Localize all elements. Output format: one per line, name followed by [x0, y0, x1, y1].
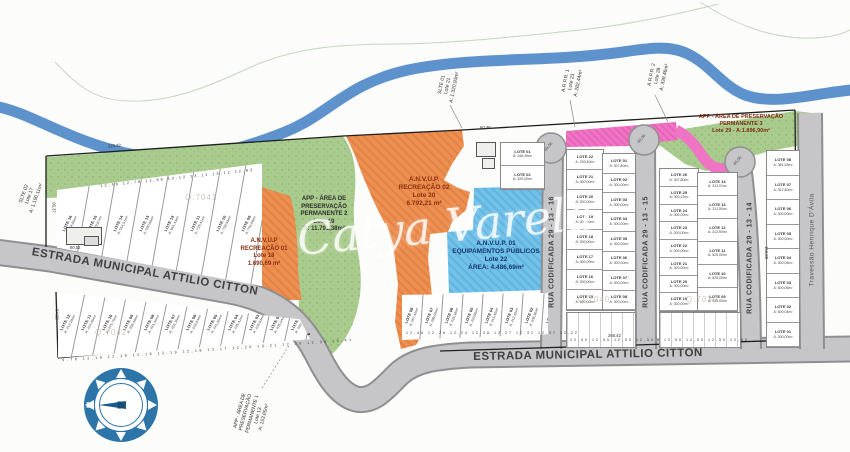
- quad-mark-7042: Q.7042: [95, 328, 127, 337]
- compass-north-letter: N: [85, 402, 95, 409]
- lot-cell: LOTE 21A: 300,00m²: [660, 258, 698, 276]
- label-rua-15: RUA CODIFICADA 29 - 13 - 15: [643, 196, 650, 308]
- lot-column-east-of-rua15: LOTE 26A: 307,80m²LOTE 25A: 300,12m²LOTE…: [659, 168, 699, 312]
- lot-cell: LOTE 02A: 600,04m²: [767, 298, 799, 323]
- lot-cell: LOTE 11A: 525,00m²: [698, 242, 737, 265]
- building-footprint-2: [476, 142, 496, 157]
- label-recreacao-01: A.N.V.U.P RECREAÇÃO 01 Lote 18 1.690,69 …: [226, 238, 302, 268]
- lot-column-west-of-rua14: LOTE 14A: 312,01m²LOTE 13A: 312,50m²LOTE…: [697, 172, 738, 312]
- lot-cell: LOTE 20A: 300,00m²: [660, 276, 698, 294]
- dim-left2: 54,32: [55, 309, 60, 319]
- quad-mark-7040: Q.7040: [578, 295, 610, 304]
- lot-cell: LOTE 01A: 307,80m²: [603, 154, 635, 174]
- dim-top2: 60,40: [480, 125, 490, 130]
- lot-strip-bottom-2: [659, 312, 741, 348]
- dim-top: 224,32: [108, 143, 121, 149]
- lot-cell: LOTE 01A: 246,49m²: [501, 143, 544, 166]
- dim-building: 80,52: [70, 245, 80, 250]
- lot-cell: LOTE 06A: 300,00m²: [603, 252, 635, 272]
- quad-mark-7039: Q.7039: [686, 295, 718, 304]
- lot-strip-bottom-1: [566, 312, 636, 348]
- building-footprint-2b: [482, 158, 495, 169]
- lot-column-west-of-rua16: LOTE 01A: 246,49m²LOTE 02A: 325,00m²: [500, 142, 545, 190]
- lot-cell: LOTE 08A: 381,93m²: [767, 151, 799, 176]
- lot-cell: LOTE 07A: 300,00m²: [603, 271, 635, 291]
- lot-cell: LOTE 26A: 307,80m²: [660, 169, 698, 187]
- dim-row-strip-1: 12,50 12,50 12,50 12,50: [570, 338, 655, 342]
- lot-cell: LOTE 01A: 300,00m²: [767, 323, 799, 348]
- dim-row-block-c: 12,48 12,26 12,24 12,38 12,27 12,32 12,3…: [406, 331, 579, 335]
- label-travessao: Travessão Henrique D'Ávila: [809, 193, 816, 286]
- lot-cell: LOTE 10A: 525,00m²: [698, 265, 737, 288]
- lot-cell: LOTE 04A: 300,00m²: [603, 213, 635, 233]
- label-rua-14: RUA CODIFICADA 29 - 13 - 14: [747, 202, 754, 314]
- lot-cell: LOTE 02A: 300,00m²: [603, 174, 635, 194]
- lot-cell: LOTE 05A: 300,00m²: [603, 232, 635, 252]
- dim-left: 95,37: [52, 202, 57, 212]
- lot-cell: LOTE 03A: 600,06m²: [767, 274, 799, 299]
- lot-cell: LOTE 23A: 300,00m²: [660, 222, 698, 240]
- lot-cell: LOTE 06A: 300,00m²: [767, 200, 799, 225]
- lot-cell: LOTE 04A: 300,05m²: [767, 249, 799, 274]
- building-footprint-1b: [84, 236, 99, 246]
- lot-cell: LOTE 12A: 312,50m²: [698, 219, 737, 242]
- lot-cell: LOTE 22A: 239,40m²: [567, 150, 603, 170]
- lot-cell: LOTE 02A: 325,00m²: [501, 166, 544, 189]
- lot-column-east-of-rua14: LOTE 08A: 381,93m²LOTE 07A: 312,50m²LOTE…: [766, 150, 800, 348]
- lot-column-west-of-rua15: LOTE 01A: 307,80m²LOTE 02A: 300,00m²LOTE…: [602, 153, 636, 311]
- label-app-permanente-3: APP - ÁREA DE PRESERVAÇÃO PERMANENTE 3 L…: [682, 114, 800, 135]
- lot-cell: LOTE 13A: 312,50m²: [698, 196, 737, 219]
- lot-cell: LOTE 17A: 300,00m²: [567, 250, 603, 270]
- compass-rose: N: [84, 368, 158, 442]
- site-plan-page: { "colors": { "river": "#5d92cc", "road"…: [0, 0, 850, 450]
- quad-mark-7041: Q.7041: [185, 193, 217, 202]
- dim-right: 153,88: [764, 246, 769, 259]
- lot-cell: LOTE 14A: 312,01m²: [698, 173, 737, 196]
- lot-cell: LOTE 22A: 300,00m²: [660, 240, 698, 258]
- site-plan-canvas: N LOTE 16A: 464,65m² LOTE 15A: 479,87m² …: [0, 0, 850, 450]
- lot-cell: LOTE 24A: 300,00m²: [660, 205, 698, 223]
- lot-cell: LOTE 16A: 300,00m²: [567, 270, 603, 290]
- lot-cell: LOTE 07A: 312,50m²: [767, 176, 799, 201]
- lot-cell: LOTE 05A: 300,00m²: [767, 225, 799, 250]
- dim-row-strip-2: 12,50 12,50 12,50 12,50: [664, 338, 749, 342]
- lot-cell: LOTE 25A: 300,12m²: [660, 187, 698, 205]
- lot-cell: LOTE 03A: 300,00m²: [603, 193, 635, 213]
